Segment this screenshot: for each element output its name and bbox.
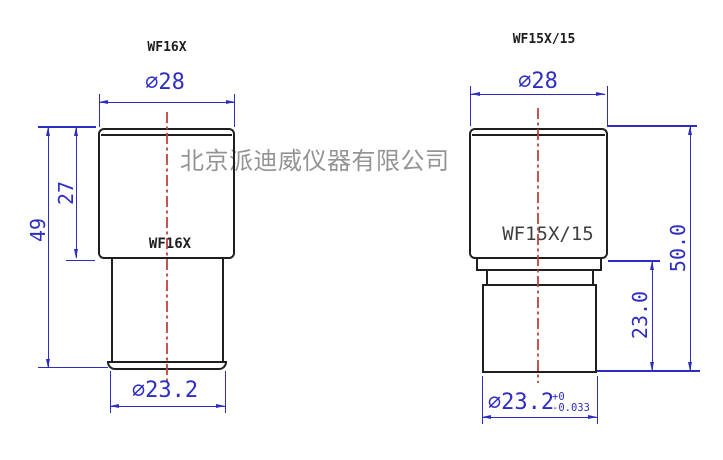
right-top-diameter-arrow-left-icon xyxy=(471,92,480,96)
right-top-diameter-label: ∅28 xyxy=(488,71,588,93)
left-ext-line-top xyxy=(38,126,96,127)
right-centerline xyxy=(537,108,539,383)
right-collar-lip-outline xyxy=(476,257,602,271)
left-barrel-diameter-dim-line xyxy=(110,406,225,407)
left-cap-height-arrow-bottom-icon xyxy=(74,249,78,258)
right-barrel-outline xyxy=(482,284,597,373)
right-ext-line-bottom xyxy=(597,370,700,371)
right-top-diameter-arrow-right-icon xyxy=(596,92,605,96)
right-collar-neck-outline xyxy=(486,271,594,284)
technical-drawing: 北京派迪威仪器有限公司 WF16X ∅28 WF16X 49 27 ∅23.2 … xyxy=(0,0,723,460)
right-top-diameter-ext-line-left xyxy=(470,86,471,126)
left-barrel-diameter-arrow-left-icon xyxy=(110,404,119,408)
right-total-height-label: 50.0 xyxy=(668,224,688,272)
left-view-title: WF16X xyxy=(117,41,217,54)
left-top-diameter-dim-line xyxy=(99,102,235,103)
left-top-diameter-ext-line-right xyxy=(234,94,235,127)
right-ext-line-middle xyxy=(608,260,660,261)
right-barrel-diameter-tolerance: +0 -0.033 xyxy=(552,392,590,414)
left-total-height-dim-line xyxy=(48,127,49,368)
left-total-height-arrow-top-icon xyxy=(46,127,50,136)
left-barrel-diameter-label: ∅23.2 xyxy=(115,380,215,402)
right-top-diameter-dim-line xyxy=(471,94,605,95)
right-total-height-arrow-top-icon xyxy=(688,126,692,135)
right-barrel-diameter-arrow-right-icon xyxy=(588,415,597,419)
left-barrel-diameter-arrow-right-icon xyxy=(216,404,225,408)
right-ext-line-top xyxy=(607,125,697,126)
left-cap-height-label: 27 xyxy=(56,181,76,205)
right-barrel-height-label: 23.0 xyxy=(630,291,650,339)
right-barrel-diameter-dim-line xyxy=(482,417,597,418)
right-view-title: WF15X/15 xyxy=(494,33,594,46)
left-top-diameter-arrow-left-icon xyxy=(99,100,108,104)
left-ext-line-middle xyxy=(66,260,95,261)
right-barrel-diameter-label: ∅23.2 xyxy=(484,392,558,414)
left-cap-height-arrow-top-icon xyxy=(74,127,78,136)
left-body-label: WF16X xyxy=(120,237,220,251)
left-top-diameter-ext-line-left xyxy=(99,94,100,127)
right-barrel-diameter-arrow-left-icon xyxy=(482,415,491,419)
right-body-label: WF15X/15 xyxy=(478,225,618,244)
left-ext-line-bottom xyxy=(38,367,108,368)
left-total-height-label: 49 xyxy=(28,218,48,242)
right-barrel-height-arrow-top-icon xyxy=(650,261,654,270)
tolerance-lower: -0.033 xyxy=(552,403,590,414)
left-top-diameter-label: ∅28 xyxy=(115,72,215,94)
left-centerline xyxy=(166,112,168,383)
right-top-diameter-ext-line-right xyxy=(607,86,608,127)
